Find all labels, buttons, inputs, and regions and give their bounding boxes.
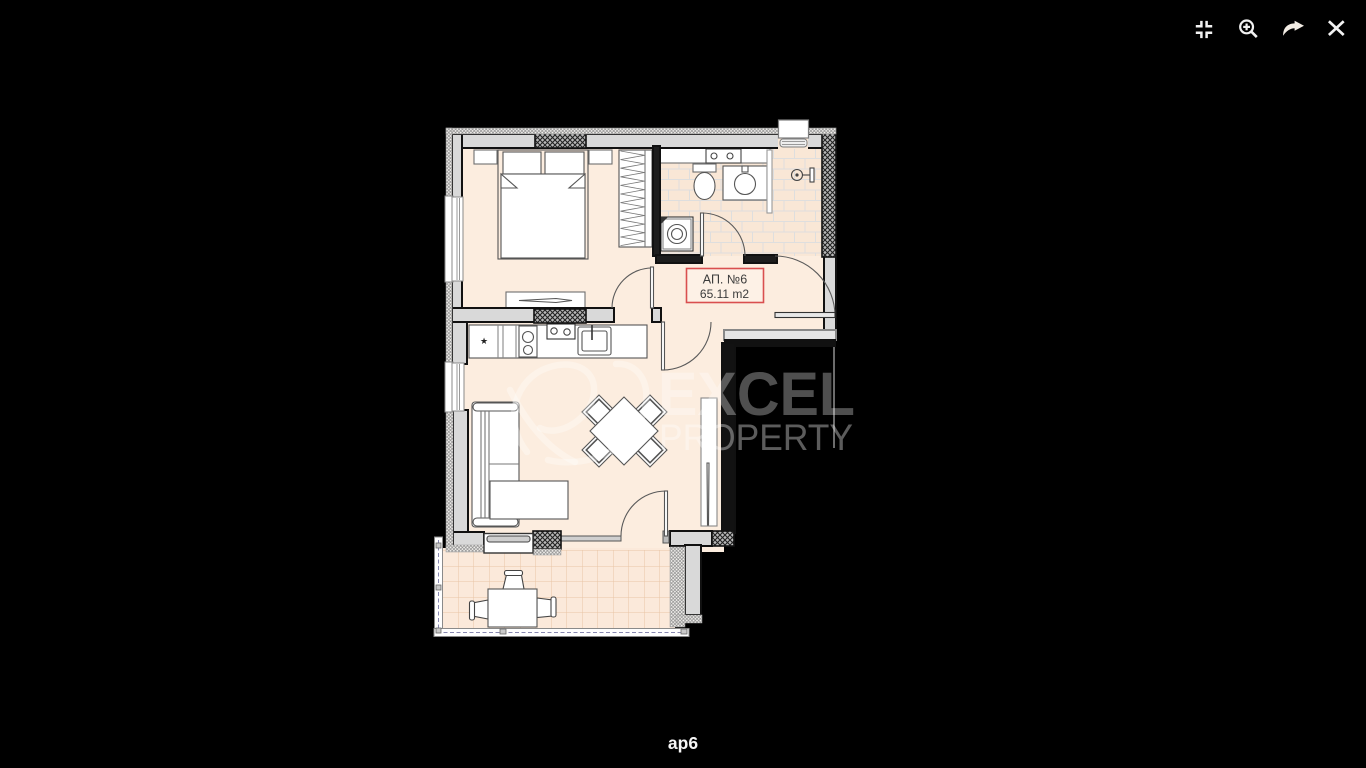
svg-text:PROPERTY: PROPERTY	[659, 417, 853, 458]
svg-text:★: ★	[480, 336, 488, 346]
svg-text:65.11 m2: 65.11 m2	[700, 287, 749, 301]
svg-text:АП. №6: АП. №6	[703, 273, 748, 287]
svg-text:ар6: ар6	[668, 733, 698, 753]
